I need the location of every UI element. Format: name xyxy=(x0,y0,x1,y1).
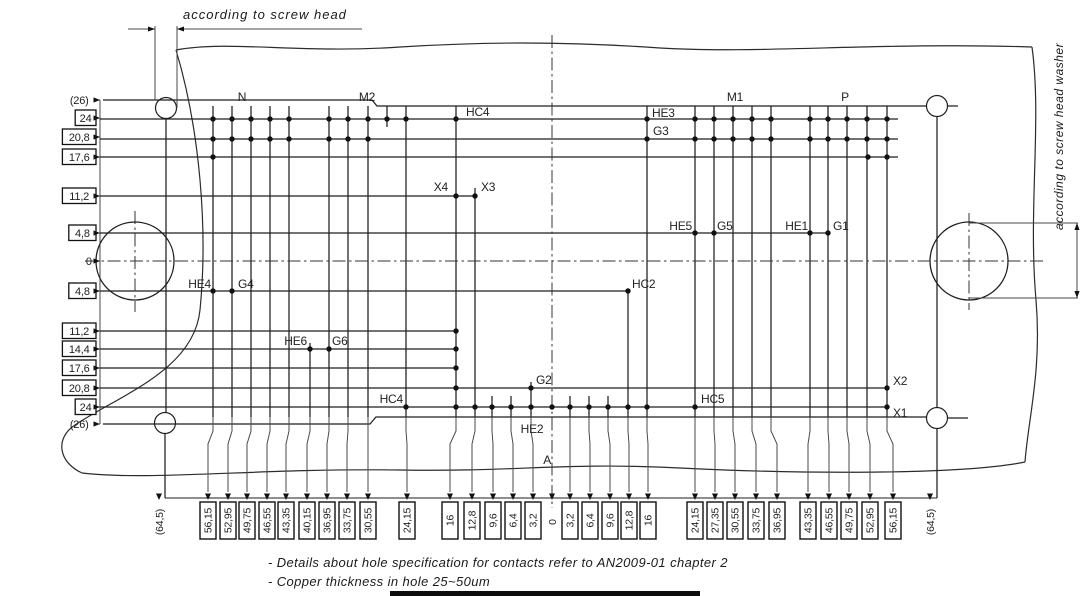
bottom-dimension-tick xyxy=(225,494,231,501)
part-label-hc2: HC2 xyxy=(632,277,656,291)
bottom-dimension-value: 9,6 xyxy=(488,513,500,527)
part-label-m2: M2 xyxy=(359,90,376,104)
pin-dot xyxy=(749,136,754,141)
bottom-dimension-value: 0 xyxy=(547,519,559,525)
part-label-g3: G3 xyxy=(653,124,669,138)
bottom-dimension-value: 33,75 xyxy=(342,508,354,534)
pin-dot xyxy=(210,288,215,293)
board-profile-edge xyxy=(103,417,926,424)
left-dimension-value: 17,6 xyxy=(69,363,90,375)
bottom-dimension-leader xyxy=(887,417,893,492)
pin-dot xyxy=(625,404,630,409)
left-dimension-arrow xyxy=(94,97,101,102)
pin-dot xyxy=(625,288,630,293)
pin-dot xyxy=(453,365,458,370)
left-dimension-arrow xyxy=(94,346,101,351)
bottom-dimension-tick xyxy=(846,494,852,501)
pin-dot xyxy=(864,116,869,121)
part-label-x1: X1 xyxy=(893,406,908,420)
bottom-dimension-leader xyxy=(307,417,310,492)
left-dimension-value: 4,8 xyxy=(75,286,90,298)
pin-dot xyxy=(825,116,830,121)
bottom-dimension-tick xyxy=(805,494,811,501)
bottom-dimension-value: 46,55 xyxy=(824,508,836,534)
pin-dot xyxy=(644,136,649,141)
bottom-dimension-value: 9,6 xyxy=(605,513,617,527)
pin-dot xyxy=(403,404,408,409)
part-label-g1: G1 xyxy=(833,219,849,233)
bottom-dimension-value: 27,35 xyxy=(710,508,722,534)
pin-dot xyxy=(286,136,291,141)
pin-dot xyxy=(210,116,215,121)
bottom-dimension-leader xyxy=(847,417,849,492)
pin-dot xyxy=(365,136,370,141)
pin-dot xyxy=(884,154,889,159)
pin-dot xyxy=(345,136,350,141)
pin-dot xyxy=(844,116,849,121)
bottom-dimension-leader xyxy=(628,417,629,492)
bottom-dimension-tick xyxy=(753,494,759,501)
pin-dot xyxy=(210,136,215,141)
left-dimension-arrow xyxy=(94,288,101,293)
bottom-dimension-tick xyxy=(156,494,162,501)
pin-dot xyxy=(453,385,458,390)
bottom-dimension-leader xyxy=(247,417,251,492)
screw-hole xyxy=(927,96,948,117)
part-label-x3: X3 xyxy=(481,180,496,194)
pin-dot xyxy=(453,328,458,333)
bottom-dimension-tick xyxy=(549,494,555,501)
pin-dot xyxy=(403,116,408,121)
pin-dot xyxy=(807,116,812,121)
bottom-dimension-leader xyxy=(492,417,493,492)
pin-dot xyxy=(365,116,370,121)
left-dimension-value: 11,2 xyxy=(69,191,89,203)
bottom-dimension-leader xyxy=(327,417,329,492)
bottom-dimension-value: 33,75 xyxy=(751,508,763,534)
pin-dot xyxy=(884,116,889,121)
bottom-dimension-leader xyxy=(589,417,590,492)
part-label-g5: G5 xyxy=(717,219,733,233)
pin-dot xyxy=(229,136,234,141)
bottom-dimension-leader xyxy=(347,417,348,492)
pin-dot xyxy=(326,346,331,351)
left-dimension-arrow xyxy=(94,404,101,409)
left-dimension-value: 0 xyxy=(86,256,92,268)
bottom-dimension-value: 12,8 xyxy=(467,510,479,530)
bottom-dimension-tick xyxy=(867,494,873,501)
bottom-dimension-tick xyxy=(927,494,933,501)
pin-dot xyxy=(825,136,830,141)
bottom-dimension-tick xyxy=(712,494,718,501)
pin-dot xyxy=(567,404,572,409)
pin-dot xyxy=(326,136,331,141)
bottom-dimension-value: 3,2 xyxy=(565,513,577,527)
left-dimension-value: (26) xyxy=(70,95,89,107)
pin-dot xyxy=(549,404,554,409)
bottom-dimension-value: 40,15 xyxy=(302,508,314,534)
bottom-dimension-value: (64,5) xyxy=(925,509,937,535)
bottom-dimension-value: 30,55 xyxy=(363,508,375,534)
bottom-dimension-tick xyxy=(304,494,310,501)
pin-dot xyxy=(384,116,389,121)
screw-hole xyxy=(927,408,948,429)
part-label-g4: G4 xyxy=(238,277,254,291)
screw-dim-arrow xyxy=(148,27,155,32)
bottom-dimension-tick xyxy=(447,494,453,501)
bottom-dimension-value: 30,55 xyxy=(730,508,742,534)
bottom-dimension-tick xyxy=(692,494,698,501)
pin-dot xyxy=(730,116,735,121)
bottom-dimension-tick xyxy=(626,494,632,501)
bottom-dimension-value: 36,95 xyxy=(772,508,784,534)
bottom-dimension-tick xyxy=(365,494,371,501)
pin-dot xyxy=(749,116,754,121)
bottom-dimension-leader xyxy=(472,417,475,492)
pin-dot xyxy=(326,116,331,121)
part-label-p: P xyxy=(841,90,849,104)
bottom-dimension-leader xyxy=(450,417,456,492)
part-label-hc4: HC4 xyxy=(466,105,490,119)
left-dimension-value: 17,6 xyxy=(69,152,90,164)
part-label-he2: HE2 xyxy=(521,422,544,436)
bottom-dimension-leader xyxy=(208,417,213,492)
pin-dot xyxy=(884,385,889,390)
bottom-dimension-value: 43,35 xyxy=(803,508,815,534)
washer-dim-arrow xyxy=(1074,223,1079,230)
bottom-dimension-leader xyxy=(714,417,715,492)
bottom-dimension-value: 6,4 xyxy=(585,513,597,527)
bottom-dimension-leader xyxy=(511,417,513,492)
screw-hole xyxy=(156,98,177,119)
pin-dot xyxy=(586,404,591,409)
bottom-dimension-tick xyxy=(732,494,738,501)
left-dimension-arrow xyxy=(94,365,101,370)
pin-dot xyxy=(528,404,533,409)
bottom-dimension-tick xyxy=(404,494,410,501)
left-dimension-value: 20,8 xyxy=(69,383,90,395)
left-dimension-arrow xyxy=(94,193,101,198)
pin-dot xyxy=(711,136,716,141)
bottom-dimension-leader xyxy=(286,417,289,492)
bottom-dimension-tick xyxy=(469,494,475,501)
pin-dot xyxy=(692,230,697,235)
bottom-dimension-tick xyxy=(530,494,536,501)
pin-dot xyxy=(472,404,477,409)
bottom-dimension-tick xyxy=(587,494,593,501)
left-dimension-arrow xyxy=(94,385,101,390)
bottom-dimension-leader xyxy=(267,417,270,492)
pin-dot xyxy=(267,136,272,141)
part-label-m1: M1 xyxy=(727,90,744,104)
pin-dot xyxy=(692,404,697,409)
bottom-dimension-leader xyxy=(867,417,870,492)
part-label-x2: X2 xyxy=(893,374,908,388)
bottom-dimension-tick xyxy=(826,494,832,501)
pin-dot xyxy=(711,116,716,121)
bottom-dimension-value: 16 xyxy=(643,515,655,527)
bottom-dimension-leader xyxy=(828,417,829,492)
bottom-dimension-tick xyxy=(283,494,289,501)
board-break-outline xyxy=(176,43,1032,50)
bottom-dimension-leader xyxy=(733,417,735,492)
pin-dot xyxy=(884,404,889,409)
pin-dot xyxy=(528,385,533,390)
bottom-dimension-tick xyxy=(774,494,780,501)
pin-dot xyxy=(307,346,312,351)
part-label-he4: HE4 xyxy=(188,277,211,291)
bottom-dimension-value: 56,15 xyxy=(203,508,215,534)
washer-dim-arrow xyxy=(1074,291,1079,298)
bottom-dimension-value: 46,55 xyxy=(262,508,274,534)
pin-dot xyxy=(807,230,812,235)
bottom-dimension-tick xyxy=(344,494,350,501)
bottom-dimension-value: 43,35 xyxy=(281,508,293,534)
bottom-dimension-tick xyxy=(510,494,516,501)
bottom-dimension-tick xyxy=(205,494,211,501)
pin-dot xyxy=(229,288,234,293)
board-break-outline xyxy=(1025,47,1037,462)
pin-dot xyxy=(644,116,649,121)
pin-dot xyxy=(267,116,272,121)
left-dimension-value: 20,8 xyxy=(69,132,90,144)
bottom-dimension-tick xyxy=(890,494,896,501)
pin-dot xyxy=(286,116,291,121)
bottom-dimension-value: 52,95 xyxy=(223,508,235,534)
bottom-dimension-value: 52,95 xyxy=(865,508,877,534)
part-label-g6: G6 xyxy=(332,334,348,348)
pin-dot xyxy=(453,116,458,121)
left-dimension-arrow xyxy=(94,258,101,263)
pin-dot xyxy=(692,136,697,141)
note-copper-thickness: - Copper thickness in hole 25~50um xyxy=(268,574,728,589)
bottom-bar xyxy=(390,591,700,596)
pin-dot xyxy=(768,136,773,141)
bottom-dimension-value: 49,75 xyxy=(242,508,254,534)
bottom-dimension-leader xyxy=(608,417,610,492)
left-dimension-arrow xyxy=(94,328,101,333)
pin-dot xyxy=(692,116,697,121)
bottom-dimension-value: 6,4 xyxy=(508,513,520,527)
left-dimension-value: (26) xyxy=(70,419,89,431)
bottom-dimension-value: (64,5) xyxy=(154,509,166,535)
left-dimension-arrow xyxy=(94,230,101,235)
part-label-he3: HE3 xyxy=(652,106,675,120)
part-label-n: N xyxy=(238,90,246,104)
bottom-dimension-tick xyxy=(607,494,613,501)
pin-dot xyxy=(605,404,610,409)
pin-dot xyxy=(345,116,350,121)
pin-dot xyxy=(248,136,253,141)
left-dimension-value: 4,8 xyxy=(75,228,90,240)
screw-head-annotation: according to screw head xyxy=(183,7,347,22)
pin-dot xyxy=(453,404,458,409)
drawing-notes: - Details about hole specification for c… xyxy=(268,555,728,593)
bottom-dimension-leader xyxy=(406,417,407,492)
part-label-a: A xyxy=(543,453,551,467)
pin-dot xyxy=(884,136,889,141)
bottom-dimension-tick xyxy=(264,494,270,501)
pin-dot xyxy=(472,193,477,198)
pin-dot xyxy=(489,404,494,409)
pin-dot xyxy=(453,193,458,198)
left-dimension-arrow xyxy=(94,115,101,120)
pin-dot xyxy=(248,116,253,121)
bottom-dimension-leader xyxy=(771,417,777,492)
bottom-dimension-leader xyxy=(808,417,810,492)
pin-dot xyxy=(864,136,869,141)
part-label-hc5: HC5 xyxy=(701,392,725,406)
board-profile-edge xyxy=(103,100,926,106)
left-dimension-arrow xyxy=(94,421,101,426)
pin-dot xyxy=(825,230,830,235)
pin-dot xyxy=(844,136,849,141)
bottom-dimension-tick xyxy=(567,494,573,501)
left-dimension-arrow xyxy=(94,154,101,159)
screw-hole xyxy=(155,413,176,434)
left-dimension-arrow xyxy=(94,134,101,139)
note-hole-specification: - Details about hole specification for c… xyxy=(268,555,728,570)
bottom-dimension-value: 3,2 xyxy=(528,513,540,527)
bottom-dimension-leader xyxy=(647,417,648,492)
pin-dot xyxy=(865,154,870,159)
part-label-he1: HE1 xyxy=(785,219,808,233)
screw-head-washer-annotation: according to screw head washer xyxy=(1052,0,1066,230)
pin-dot xyxy=(508,404,513,409)
pin-dot xyxy=(644,404,649,409)
bottom-dimension-value: 36,95 xyxy=(322,508,334,534)
pin-dot xyxy=(730,136,735,141)
bottom-dimension-value: 56,15 xyxy=(888,508,900,534)
part-label-he6: HE6 xyxy=(284,334,307,348)
left-dimension-value: 24 xyxy=(80,113,92,125)
bottom-dimension-tick xyxy=(645,494,651,501)
part-label-he5: HE5 xyxy=(669,219,692,233)
bottom-dimension-value: 24,15 xyxy=(690,508,702,534)
bottom-dimension-value: 24,15 xyxy=(402,508,414,534)
screw-dim-arrow xyxy=(177,27,184,32)
part-label-x4: X4 xyxy=(434,180,449,194)
bottom-dimension-value: 16 xyxy=(445,515,457,527)
engineering-drawing-page: (26)2420,817,611,24,804,811,214,417,620,… xyxy=(0,0,1080,596)
bottom-dimension-value: 12,8 xyxy=(624,510,636,530)
part-label-g2: G2 xyxy=(536,373,552,387)
board-break-outline xyxy=(82,462,1025,476)
left-dimension-value: 14,4 xyxy=(69,344,90,356)
pin-dot xyxy=(711,230,716,235)
left-dimension-value: 11,2 xyxy=(69,326,89,338)
pin-dot xyxy=(807,136,812,141)
bottom-dimension-tick xyxy=(324,494,330,501)
pin-dot xyxy=(768,116,773,121)
bottom-dimension-leader xyxy=(228,417,232,492)
pin-dot xyxy=(229,116,234,121)
left-dimension-value: 24 xyxy=(80,402,92,414)
bottom-dimension-tick xyxy=(244,494,250,501)
technical-drawing: (26)2420,817,611,24,804,811,214,417,620,… xyxy=(0,0,1080,596)
bottom-dimension-value: 49,75 xyxy=(844,508,856,534)
pin-dot xyxy=(210,154,215,159)
bottom-dimension-tick xyxy=(490,494,496,501)
bottom-dimension-leader xyxy=(752,417,756,492)
pin-dot xyxy=(453,346,458,351)
part-label-hc4: HC4 xyxy=(380,392,404,406)
